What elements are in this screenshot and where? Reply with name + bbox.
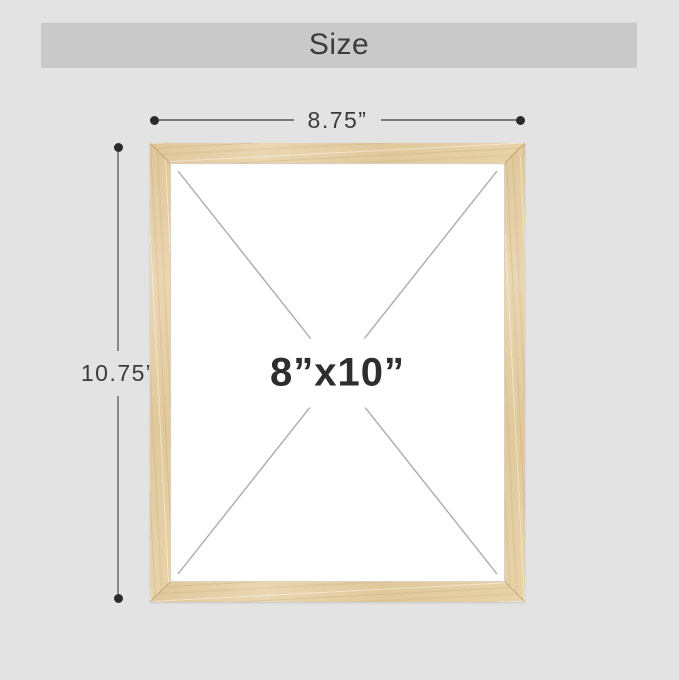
- frame-right-rail: [505, 143, 525, 602]
- section-title: Size: [309, 28, 369, 62]
- dimension-endpoint-dot-top: [114, 143, 123, 152]
- dimension-line-left-segment: [159, 119, 294, 121]
- size-diagram-page: Size 8.75” 10.75”: [0, 0, 679, 680]
- dimension-endpoint-dot-left: [150, 116, 159, 125]
- dimension-endpoint-dot-right: [516, 116, 525, 125]
- picture-frame: 8”x10”: [150, 143, 525, 602]
- frame-top-rail: [150, 143, 525, 163]
- frame-left-rail: [150, 143, 170, 602]
- width-dimension-label: 8.75”: [308, 107, 368, 134]
- frame-size-label: 8”x10”: [252, 338, 423, 407]
- dimension-endpoint-dot-bottom: [114, 594, 123, 603]
- height-dimension-label: 10.75”: [81, 360, 155, 387]
- frame-bottom-rail: [150, 582, 525, 602]
- dimension-line-top-segment: [117, 152, 119, 351]
- dimension-line-bottom-segment: [117, 396, 119, 595]
- height-dimension: 10.75”: [80, 143, 156, 603]
- frame-opening: 8”x10”: [170, 163, 505, 582]
- width-dimension: 8.75”: [150, 110, 525, 130]
- dimension-line-right-segment: [381, 119, 516, 121]
- section-header: Size: [41, 22, 637, 68]
